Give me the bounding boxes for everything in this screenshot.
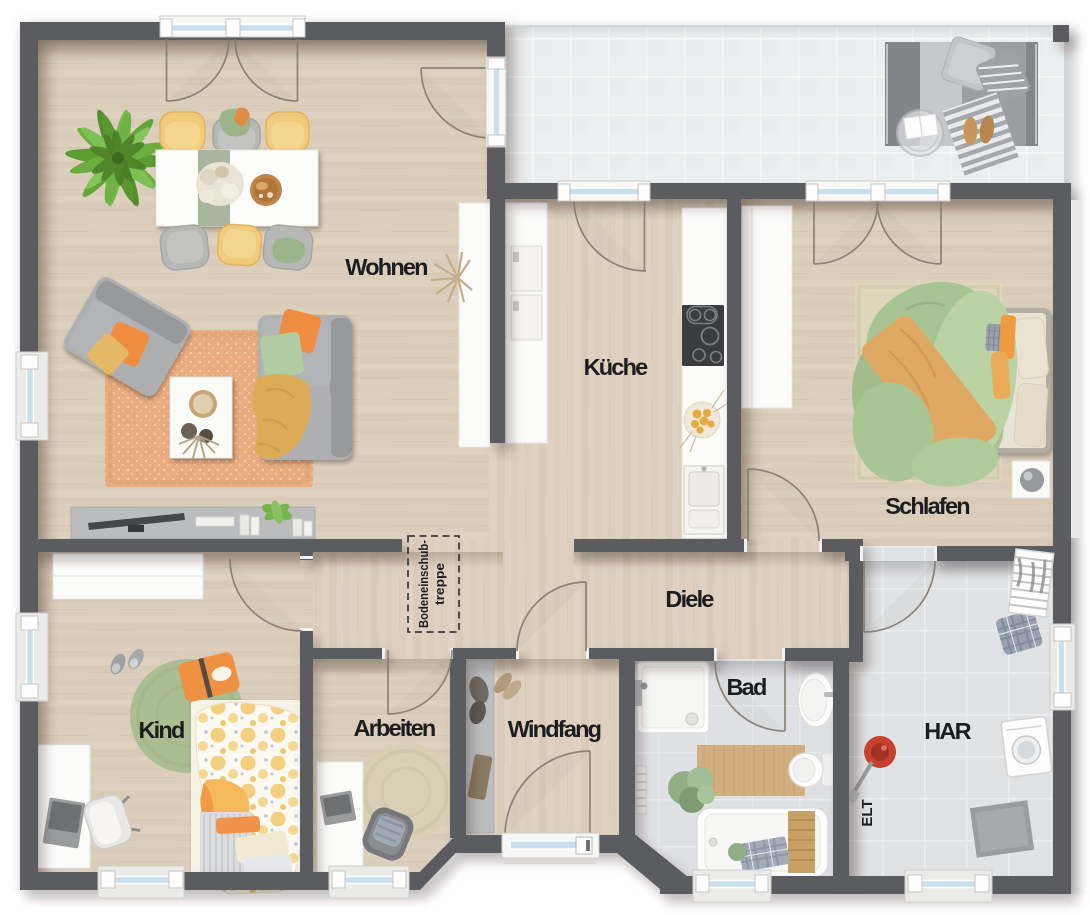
svg-text:Windfang: Windfang — [508, 716, 601, 742]
svg-text:Bodeneinschub-: Bodeneinschub- — [416, 540, 431, 628]
svg-text:HAR: HAR — [924, 718, 971, 744]
svg-text:Diele: Diele — [665, 586, 714, 612]
svg-text:Kind: Kind — [138, 717, 183, 743]
svg-text:Bad: Bad — [727, 674, 766, 700]
svg-text:Wohnen: Wohnen — [345, 254, 427, 280]
svg-text:Küche: Küche — [584, 354, 649, 380]
svg-text:treppe: treppe — [432, 563, 447, 605]
svg-text:Arbeiten: Arbeiten — [354, 715, 435, 741]
svg-text:Schlafen: Schlafen — [885, 493, 969, 519]
svg-text:ELT: ELT — [859, 799, 876, 826]
